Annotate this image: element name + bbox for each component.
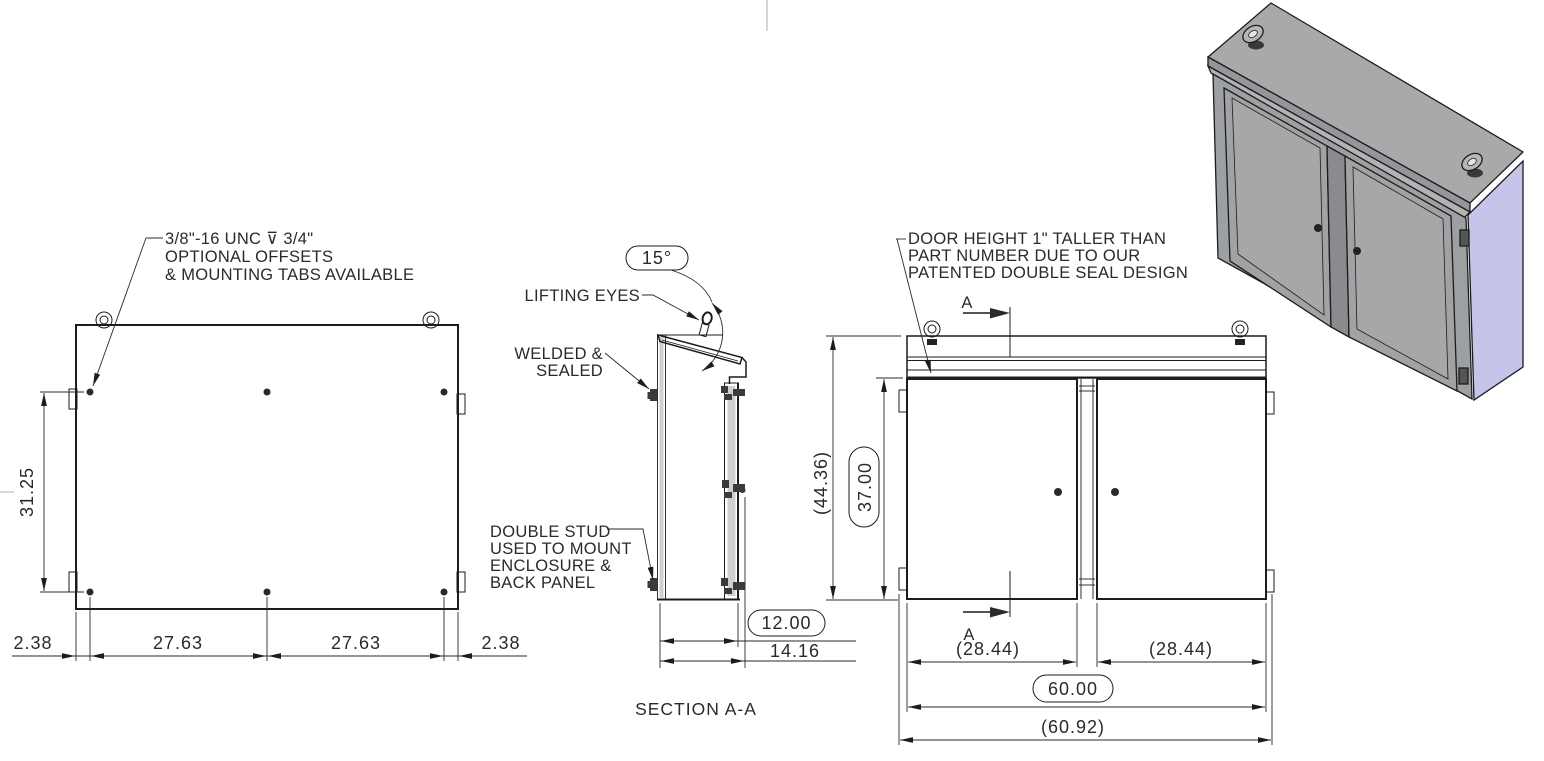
front-view: A A DOOR HEIGHT 1" TA <box>811 230 1274 745</box>
dim-door-right-label: (28.44) <box>1149 639 1213 659</box>
mount-note-line2: OPTIONAL OFFSETS <box>165 248 333 266</box>
section-cut-top: A <box>961 294 1010 357</box>
lifting-eyes-label: LIFTING EYES <box>525 287 640 305</box>
front-door-right-handle <box>1111 488 1119 496</box>
dim-right-offset-label: 2.38 <box>481 633 520 653</box>
roof-angle-callout: 15° <box>626 246 723 371</box>
dim-depth: 12.00 14.16 <box>660 497 856 668</box>
welded-sealed-note: WELDED & SEALED <box>514 345 649 389</box>
dim-stud-vertical: 31.25 <box>17 392 84 592</box>
dim-stud-vertical-label: 31.25 <box>17 467 37 517</box>
front-center-post <box>1079 379 1095 599</box>
mount-note: 3/8"-16 UNC ⊽ 3/4" OPTIONAL OFFSETS & MO… <box>93 230 414 386</box>
door-note-line1: DOOR HEIGHT 1" TALLER THAN <box>908 230 1166 248</box>
dim-height-basic-label: 37.00 <box>855 462 875 512</box>
section-sloped-roof <box>658 335 742 364</box>
engineering-drawing-sheet: 31.25 2.38 27.63 27.63 2.38 3/8"-16 UNC … <box>0 0 1544 761</box>
front-tab-bottom-left <box>899 568 907 590</box>
section-cut-bottom: A <box>963 571 1010 644</box>
door-note-line3: PATENTED DOUBLE SEAL DESIGN <box>908 264 1188 282</box>
dim-widths: (28.44) (28.44) 60.00 (60.92) <box>899 594 1272 745</box>
dim-width-overall-label: (60.92) <box>1041 717 1105 737</box>
stud-label-line2: USED TO MOUNT <box>490 540 632 558</box>
dim-height-basic: 37.00 <box>849 378 903 599</box>
stud-label-line4: BACK PANEL <box>490 574 595 592</box>
rear-view: 31.25 2.38 27.63 27.63 2.38 3/8"-16 UNC … <box>12 230 527 661</box>
dim-width-basic-label: 60.00 <box>1048 679 1098 699</box>
front-lifting-eye-right <box>1232 321 1248 345</box>
roof-angle-label: 15° <box>642 248 672 268</box>
stud-label-line1: DOUBLE STUD <box>490 523 611 541</box>
section-title: SECTION A-A <box>635 699 757 719</box>
dim-door-left-label: (28.44) <box>956 639 1020 659</box>
iso-hinge-top <box>1460 230 1469 246</box>
welded-label-line1: WELDED & <box>514 345 603 363</box>
dim-left-offset-label: 2.38 <box>13 633 52 653</box>
dim-height-overall-label: (44.36) <box>811 451 831 515</box>
section-view: 15° LIFTING EYES WELDED & SEALED DOUBLE … <box>490 246 856 719</box>
rear-enclosure-outline <box>76 325 458 609</box>
front-door-left <box>907 379 1077 599</box>
dim-bottom-chain: 2.38 27.63 27.63 2.38 <box>12 597 527 661</box>
front-door-right <box>1097 379 1266 599</box>
section-arrow-top-label: A <box>961 294 972 312</box>
door-height-note: DOOR HEIGHT 1" TALLER THAN PART NUMBER D… <box>896 230 1188 373</box>
dim-stud-span1-label: 27.63 <box>153 633 203 653</box>
dim-depth-overall-label: 14.16 <box>770 641 820 661</box>
stud-label-line3: ENCLOSURE & <box>490 557 612 575</box>
front-tab-top-right <box>1266 392 1274 414</box>
welded-label-line2: SEALED <box>536 362 603 380</box>
rear-mounting-studs <box>87 389 448 596</box>
double-stud-note: DOUBLE STUD USED TO MOUNT ENCLOSURE & BA… <box>490 523 653 592</box>
door-note-line2: PART NUMBER DUE TO OUR <box>908 247 1140 265</box>
front-door-left-handle <box>1054 488 1062 496</box>
lifting-eyes-note: LIFTING EYES <box>525 287 699 320</box>
iso-hinge-bottom <box>1459 368 1468 384</box>
iso-view <box>1208 3 1523 400</box>
section-lifting-eye <box>698 311 713 337</box>
section-back-panel <box>660 337 664 598</box>
front-tab-top-left <box>899 390 907 412</box>
mount-note-line3: & MOUNTING TABS AVAILABLE <box>165 266 414 284</box>
dim-stud-span2-label: 27.63 <box>331 633 381 653</box>
dim-depth-basic-label: 12.00 <box>761 613 811 633</box>
iso-handle-right <box>1353 247 1361 255</box>
mount-note-leader <box>93 238 146 386</box>
drawing-canvas: 31.25 2.38 27.63 27.63 2.38 3/8"-16 UNC … <box>0 0 1544 761</box>
front-lifting-eye-left <box>924 321 940 345</box>
mount-note-line1: 3/8"-16 UNC ⊽ 3/4" <box>165 230 313 248</box>
iso-handle-left <box>1314 224 1322 232</box>
front-tab-bottom-right <box>1266 570 1274 592</box>
